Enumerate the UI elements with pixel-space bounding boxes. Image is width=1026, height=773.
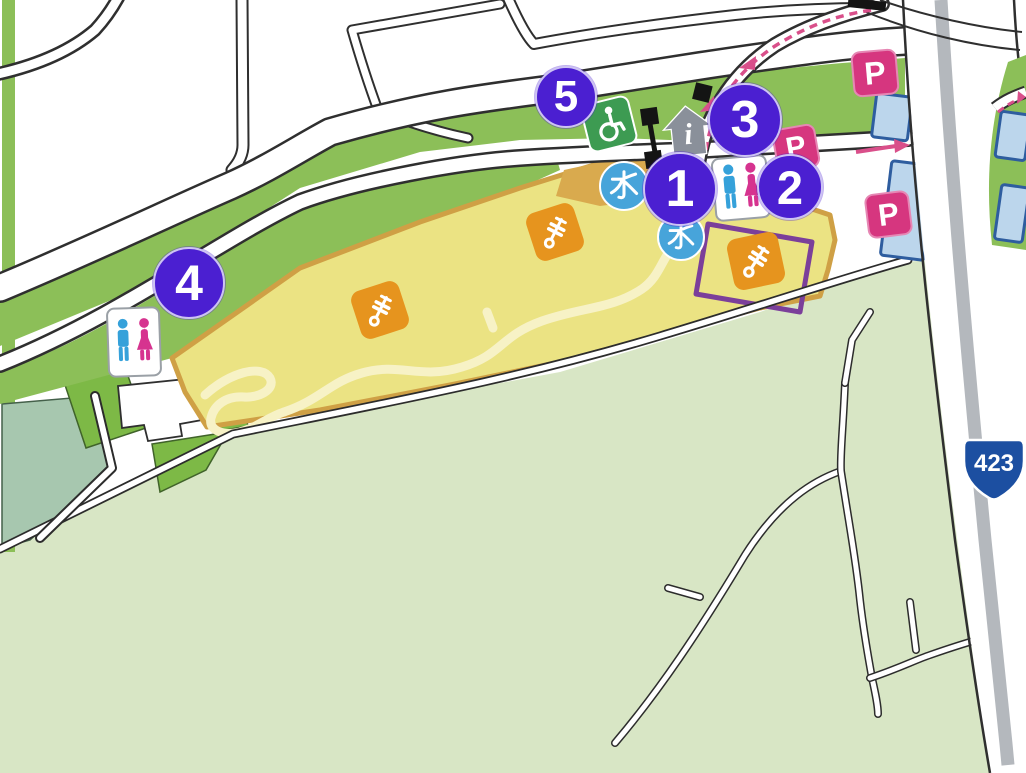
toilet-icon [106, 306, 162, 378]
spot-marker-label: 3 [731, 94, 760, 146]
route-shield-shape: 423 [962, 437, 1026, 503]
spot-marker-3[interactable]: 3 [708, 83, 782, 157]
map-canvas [0, 0, 1026, 773]
spot-marker-label: 5 [554, 75, 578, 119]
spot-marker-label: 2 [777, 164, 803, 211]
parking-label: P [863, 54, 887, 93]
spot-marker-2[interactable]: 2 [757, 154, 823, 220]
spot-marker-1[interactable]: 1 [643, 152, 717, 226]
park-map: i 水 水 [0, 0, 1026, 773]
route-number: 423 [974, 450, 1014, 477]
route-shield-icon: 423 [962, 437, 1026, 503]
equipment-glyph [355, 285, 405, 335]
spot-marker-label: 1 [666, 163, 695, 215]
toilet-figures [109, 310, 159, 374]
parking-icon: P [863, 189, 913, 239]
equipment-glyph [731, 236, 781, 286]
water-icon: 水 [599, 161, 649, 211]
water-kanji-glyph [607, 169, 641, 203]
spot-marker-label: 4 [175, 258, 203, 308]
parking-label: P [876, 195, 901, 233]
exercise-equipment-icon [725, 230, 787, 292]
parking-icon: P [850, 48, 900, 98]
spot-marker-5[interactable]: 5 [535, 66, 597, 128]
equipment-glyph [530, 207, 580, 257]
spot-marker-4[interactable]: 4 [153, 247, 225, 319]
